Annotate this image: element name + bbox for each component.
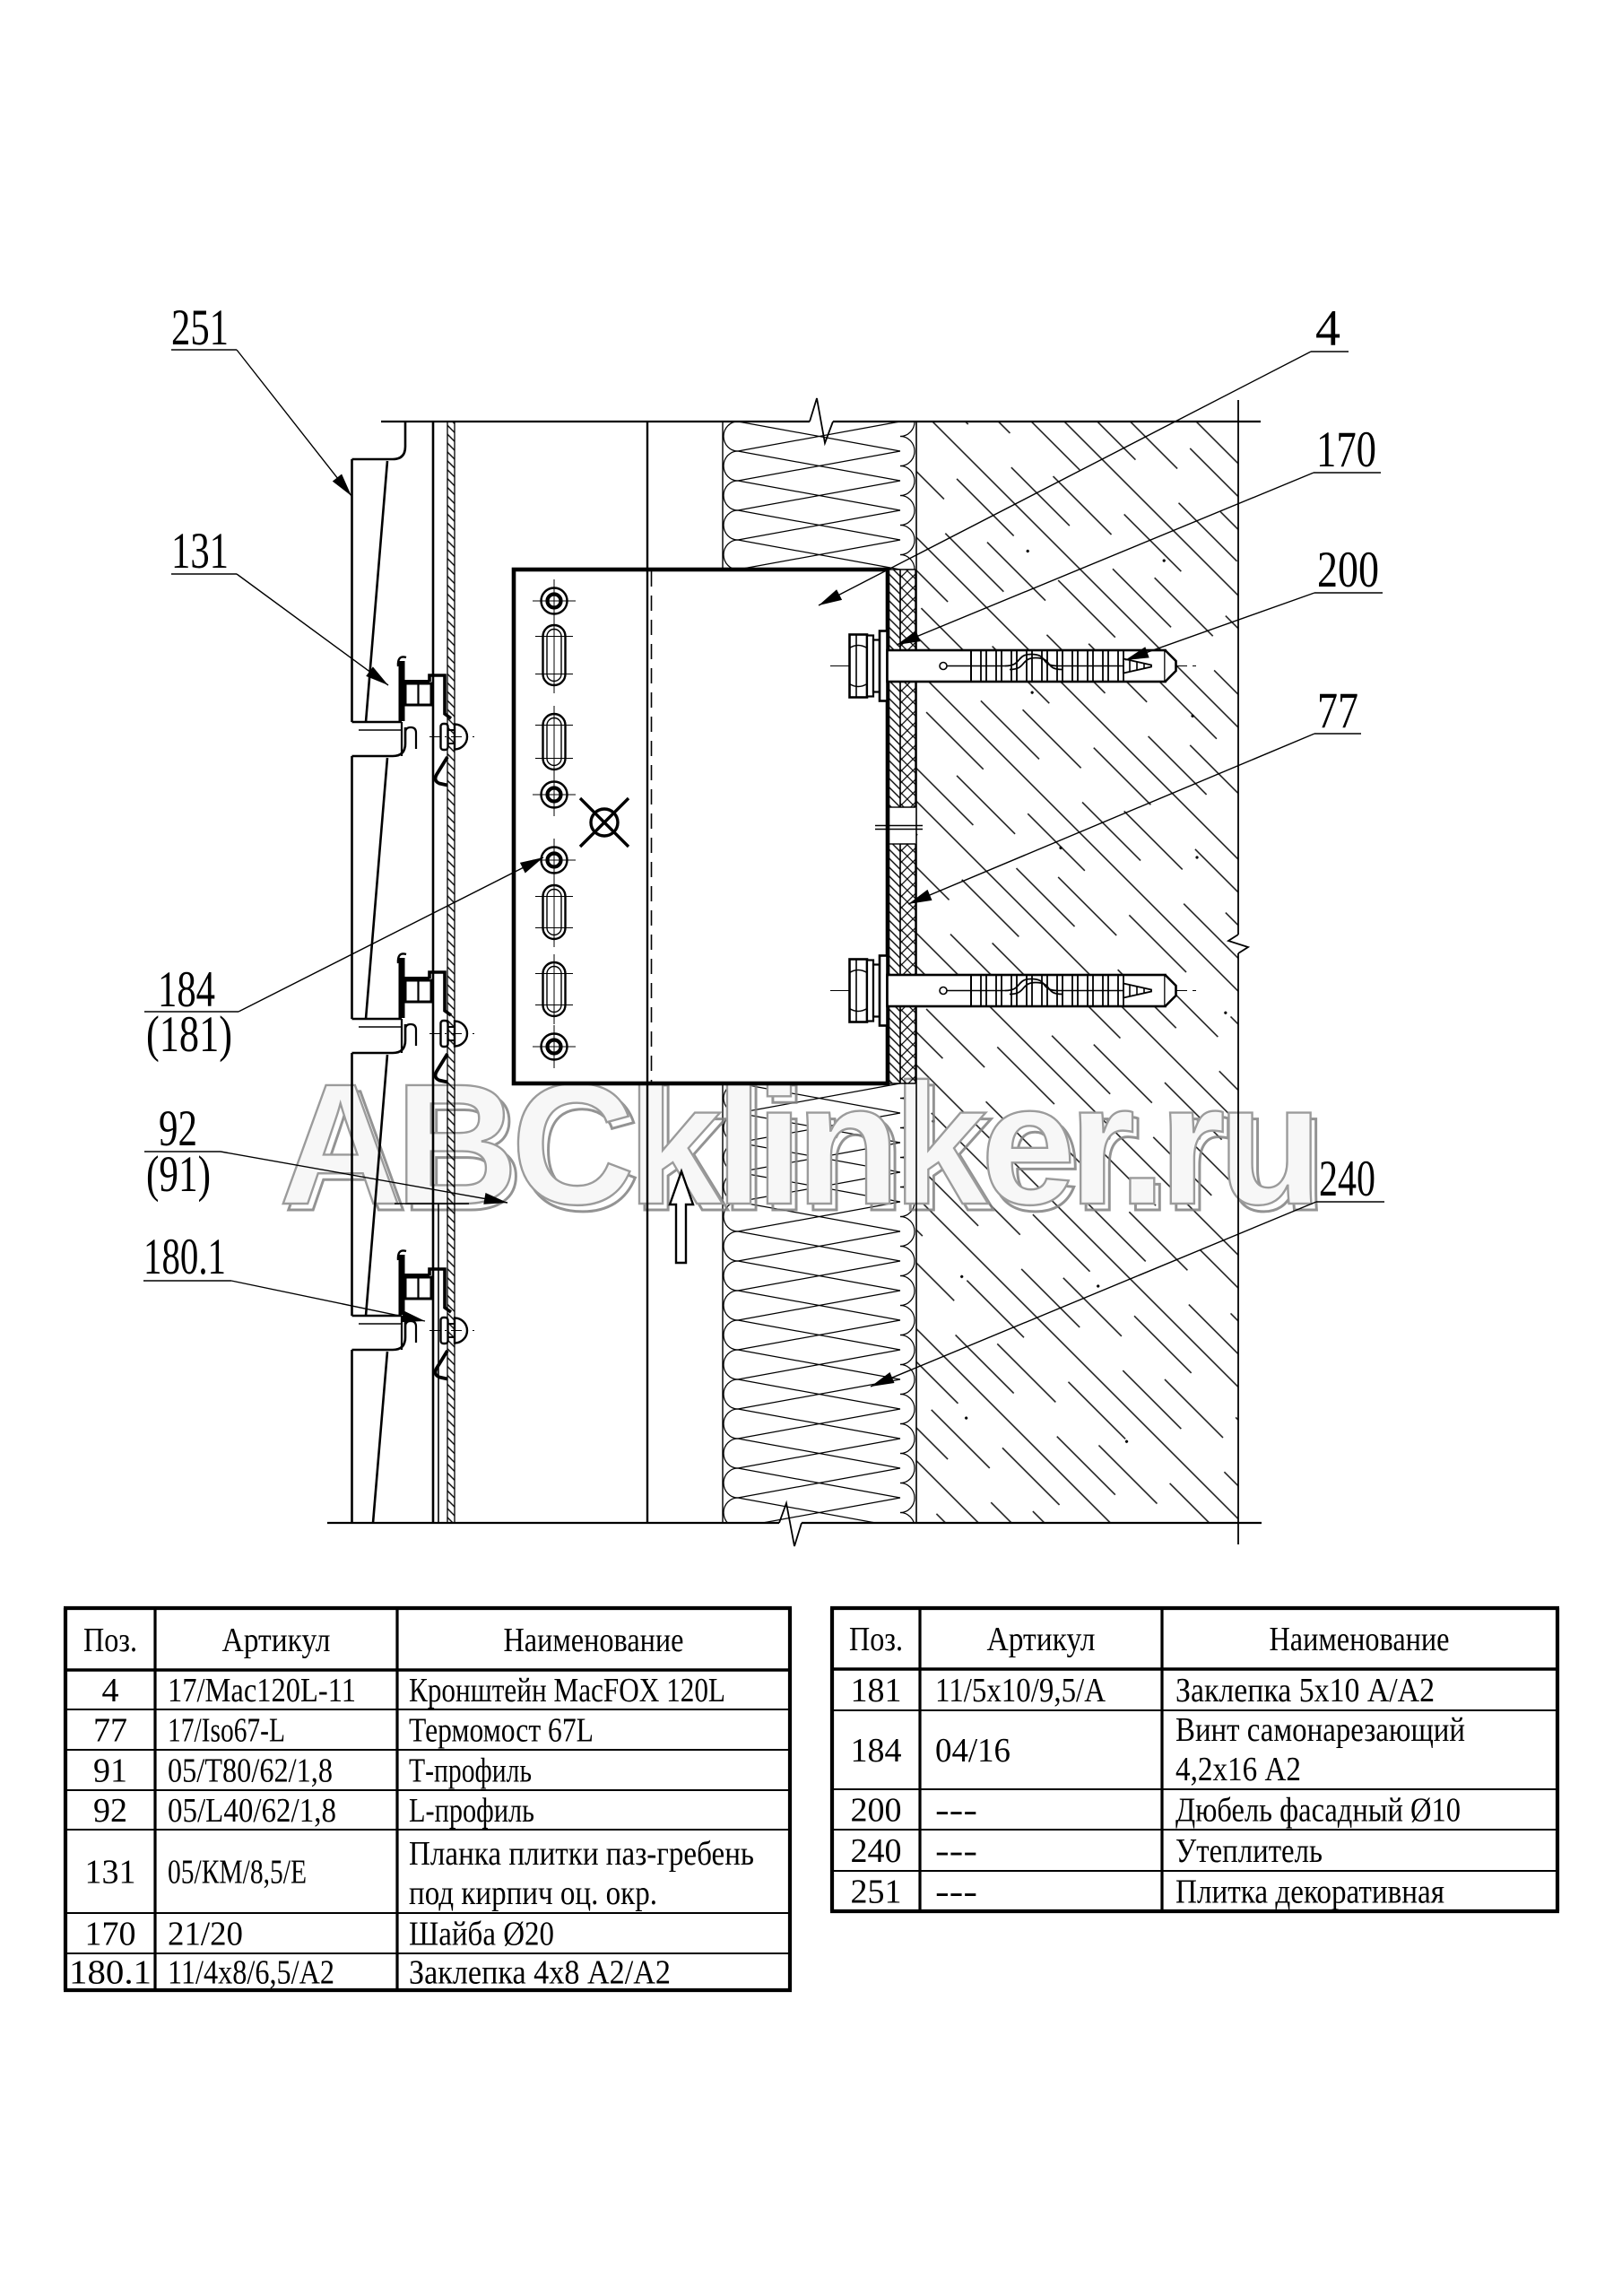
svg-text:181: 181 (851, 1672, 902, 1709)
svg-text:11/4x8/6,5/А2: 11/4x8/6,5/А2 (168, 1954, 334, 1992)
svg-text:Плитка декоративная: Плитка декоративная (1175, 1874, 1444, 1911)
svg-text:---: --- (935, 1832, 977, 1870)
svg-text:92: 92 (93, 1792, 127, 1830)
svg-text:Дюбель фасадный Ø10: Дюбель фасадный Ø10 (1175, 1792, 1461, 1830)
svg-text:Заклепка 4x8 А2/А2: Заклепка 4x8 А2/А2 (409, 1954, 671, 1992)
svg-text:Артикул: Артикул (222, 1622, 331, 1659)
svg-text:Наименование: Наименование (504, 1622, 684, 1659)
svg-text:(91): (91) (146, 1146, 211, 1203)
svg-text:---: --- (935, 1874, 977, 1911)
svg-text:05/Т80/62/1,8: 05/Т80/62/1,8 (168, 1752, 333, 1790)
svg-text:4,2x16 А2: 4,2x16 А2 (1175, 1751, 1301, 1788)
svg-text:Утеплитель: Утеплитель (1175, 1832, 1323, 1870)
svg-text:251: 251 (171, 300, 229, 356)
svg-text:200: 200 (1317, 542, 1379, 598)
svg-text:170: 170 (85, 1916, 136, 1953)
svg-text:17/Iso67-L: 17/Iso67-L (168, 1712, 285, 1750)
svg-text:77: 77 (1317, 683, 1358, 739)
svg-text:Артикул: Артикул (987, 1621, 1096, 1658)
svg-text:Шайба Ø20: Шайба Ø20 (409, 1916, 554, 1953)
svg-text:Планка плитки паз-гребень: Планка плитки паз-гребень (409, 1835, 754, 1873)
svg-text:4: 4 (102, 1672, 119, 1709)
svg-text:240: 240 (1319, 1151, 1375, 1207)
svg-text:L-профиль: L-профиль (409, 1792, 534, 1830)
svg-text:180.1: 180.1 (143, 1229, 226, 1285)
svg-text:200: 200 (851, 1792, 902, 1830)
svg-text:131: 131 (171, 523, 229, 579)
svg-text:Т-профиль: Т-профиль (409, 1752, 532, 1790)
svg-text:под кирпич оц. окр.: под кирпич оц. окр. (409, 1874, 657, 1912)
svg-text:170: 170 (1316, 422, 1376, 478)
svg-text:184: 184 (851, 1732, 902, 1770)
svg-text:180.1: 180.1 (69, 1954, 152, 1992)
svg-text:17/Mac120L-11: 17/Mac120L-11 (168, 1672, 356, 1709)
svg-text:Винт самонарезающий: Винт самонарезающий (1175, 1711, 1465, 1749)
svg-text:91: 91 (93, 1752, 127, 1790)
svg-text:Термомост 67L: Термомост 67L (409, 1712, 594, 1750)
svg-text:05/L40/62/1,8: 05/L40/62/1,8 (168, 1792, 336, 1830)
svg-text:77: 77 (93, 1712, 127, 1750)
svg-text:11/5x10/9,5/А: 11/5x10/9,5/А (935, 1672, 1106, 1709)
svg-text:---: --- (935, 1792, 977, 1830)
svg-text:21/20: 21/20 (168, 1916, 243, 1953)
svg-text:(181): (181) (146, 1006, 232, 1063)
svg-text:Заклепка 5x10 А/А2: Заклепка 5x10 А/А2 (1175, 1672, 1435, 1709)
svg-text:4: 4 (1315, 300, 1340, 357)
svg-text:251: 251 (851, 1874, 902, 1911)
svg-text:Поз.: Поз. (83, 1622, 137, 1659)
svg-text:05/КМ/8,5/Е: 05/КМ/8,5/Е (168, 1854, 307, 1892)
svg-text:240: 240 (851, 1832, 902, 1870)
svg-text:Поз.: Поз. (849, 1621, 903, 1658)
svg-text:Наименование: Наименование (1270, 1621, 1450, 1658)
svg-text:131: 131 (85, 1854, 136, 1892)
svg-text:Кронштейн MacFOX 120L: Кронштейн MacFOX 120L (409, 1672, 725, 1709)
svg-text:04/16: 04/16 (935, 1732, 1010, 1770)
